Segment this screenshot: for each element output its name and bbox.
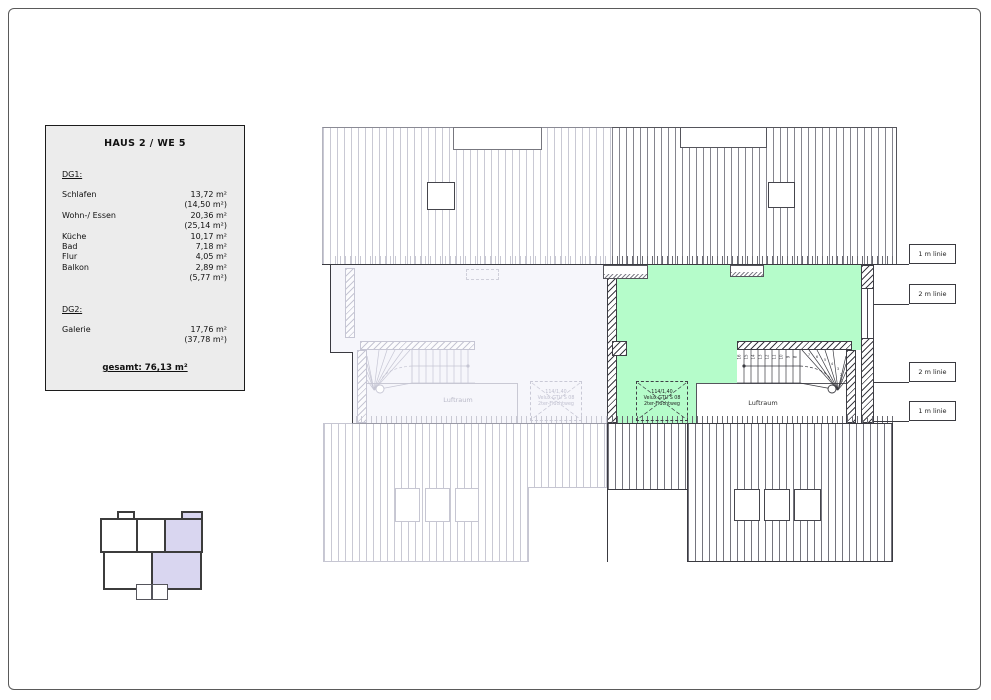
escape-skylight-right-label: 114/1,40Velux GTU S 082ter-Fluchtweg xyxy=(637,390,687,407)
gable-wall-bottom xyxy=(861,338,874,423)
legend-row: Bad7,18 m² xyxy=(62,242,227,252)
keyplan-entry-1 xyxy=(136,584,152,600)
adjacent-stair-side-wall xyxy=(357,350,367,423)
roof-lower-middle xyxy=(607,423,688,490)
skylight-text-line: Velux GTU S 08 xyxy=(637,396,687,402)
eave-ticks-upper-right xyxy=(612,256,893,264)
area-legend: HAUS 2 / WE 5 DG1:Schlafen13,72 m²(14,50… xyxy=(45,125,245,391)
stair-side-wall xyxy=(846,350,856,423)
roof-lower-right xyxy=(687,423,893,562)
meter-line-box: 2 m linie xyxy=(909,362,956,382)
keyplan-entry-2 xyxy=(152,584,168,600)
meter-leader-4 xyxy=(874,421,909,422)
skylight-right-1 xyxy=(734,489,760,521)
legend-row: Küche10,17 m² xyxy=(62,232,227,242)
room-area-gross: (5,77 m²) xyxy=(62,273,227,283)
lower-eave-line-left xyxy=(352,423,607,424)
keyplan-unit-top-mid xyxy=(136,518,166,553)
room-name: Galerie xyxy=(62,325,91,335)
room-area: 4,05 m² xyxy=(196,252,227,262)
upper-roof-eave-line xyxy=(322,264,909,265)
dormer-box-2-hatch xyxy=(731,272,763,276)
legend-total: gesamt: 76,13 m² xyxy=(46,363,244,373)
room-name: Küche xyxy=(62,232,86,242)
skylight-right-3 xyxy=(794,489,821,521)
outline-left-step xyxy=(330,352,353,353)
room-area: 17,76 m² xyxy=(191,325,227,335)
room-area: 20,36 m² xyxy=(191,211,227,221)
adjacent-outer-wall xyxy=(345,268,355,338)
luftraum-label-left: Luftraum xyxy=(418,396,498,404)
meter-line-box: 2 m linie xyxy=(909,284,956,304)
escape-skylight-left-label: 114/1,40Velux GTU S 082ter-Fluchtweg xyxy=(531,390,581,407)
skylight-left-2 xyxy=(425,488,450,522)
roof-lower-left-notch xyxy=(528,487,607,562)
gable-window xyxy=(861,289,874,338)
keyplan xyxy=(96,508,211,603)
legend-row: Balkon2,89 m² xyxy=(62,263,227,273)
meter-leader-3 xyxy=(874,382,909,383)
luftraum-label-right: Luftraum xyxy=(723,399,803,407)
meter-leader-2 xyxy=(874,304,909,305)
legend-section-heading: DG1: xyxy=(62,169,227,180)
chimney-1 xyxy=(427,182,455,210)
escape-skylight-left: 114/1,40Velux GTU S 082ter-Fluchtweg xyxy=(530,381,582,421)
dormer-box-2 xyxy=(730,265,764,277)
stair-area xyxy=(737,350,846,383)
keyplan-unit-top-right xyxy=(164,518,203,553)
room-area-gross: (25,14 m²) xyxy=(62,221,227,231)
outline-left-1 xyxy=(330,265,331,352)
balcony-recess-left-line xyxy=(607,490,608,562)
room-name: Balkon xyxy=(62,263,89,273)
room-name: Flur xyxy=(62,252,77,262)
escape-skylight-right: 114/1,40Velux GTU S 082ter-Fluchtweg xyxy=(636,381,688,421)
room-name: Schlafen xyxy=(62,190,96,200)
legend-rows: Galerie17,76 m²(37,78 m²) xyxy=(62,325,227,346)
skylight-left-3 xyxy=(455,488,479,522)
skylight-right-2 xyxy=(764,489,790,521)
outline-left-2 xyxy=(352,352,353,423)
chimney-2 xyxy=(768,182,795,208)
adjacent-stair-top-wall xyxy=(360,341,475,350)
roof-dormer-notch-2 xyxy=(680,127,767,148)
legend-row: Flur4,05 m² xyxy=(62,252,227,262)
legend-row: Wohn-/ Essen20,36 m² xyxy=(62,211,227,221)
meter-line-box: 1 m linie xyxy=(909,244,956,264)
stair-top-wall xyxy=(737,341,852,350)
room-area: 10,17 m² xyxy=(191,232,227,242)
meter-line-box: 1 m linie xyxy=(909,401,956,421)
legend-row: Galerie17,76 m² xyxy=(62,325,227,335)
room-area-gross: (37,78 m²) xyxy=(62,335,227,345)
legend-title: HAUS 2 / WE 5 xyxy=(46,138,244,149)
dormer-box-1 xyxy=(603,265,648,279)
skylight-text-line: 2ter-Fluchtweg xyxy=(637,402,687,408)
room-name: Bad xyxy=(62,242,77,252)
room-area: 13,72 m² xyxy=(191,190,227,200)
eave-ticks-upper-left xyxy=(330,256,612,264)
keyplan-unit-top-left xyxy=(100,518,138,553)
adjacent-luftraum-top-line xyxy=(367,383,517,384)
legend-section-heading: DG2: xyxy=(62,304,227,315)
lower-eave-line-right xyxy=(607,423,893,424)
drawing-sheet: 1 m linie2 m linie2 m linie1 m linie 114… xyxy=(0,0,991,700)
skylight-text-line: 2ter-Fluchtweg xyxy=(531,402,581,408)
room-area: 2,89 m² xyxy=(196,263,227,273)
room-name: Wohn-/ Essen xyxy=(62,211,116,221)
wall-pier xyxy=(612,341,627,356)
legend-row: Schlafen13,72 m² xyxy=(62,190,227,200)
dormer-box-1-hatch xyxy=(604,274,647,278)
adjacent-balcony-dashed xyxy=(466,269,499,280)
legend-rows: Schlafen13,72 m²(14,50 m²)Wohn-/ Essen20… xyxy=(62,190,227,284)
room-area: 7,18 m² xyxy=(196,242,227,252)
gable-wall-top xyxy=(861,265,874,289)
roof-dormer-notch-1 xyxy=(453,127,542,150)
skylight-left-1 xyxy=(395,488,420,522)
skylight-text-line: Velux GTU S 08 xyxy=(531,396,581,402)
legend-sections: DG1:Schlafen13,72 m²(14,50 m²)Wohn-/ Ess… xyxy=(46,169,244,345)
room-area-gross: (14,50 m²) xyxy=(62,200,227,210)
